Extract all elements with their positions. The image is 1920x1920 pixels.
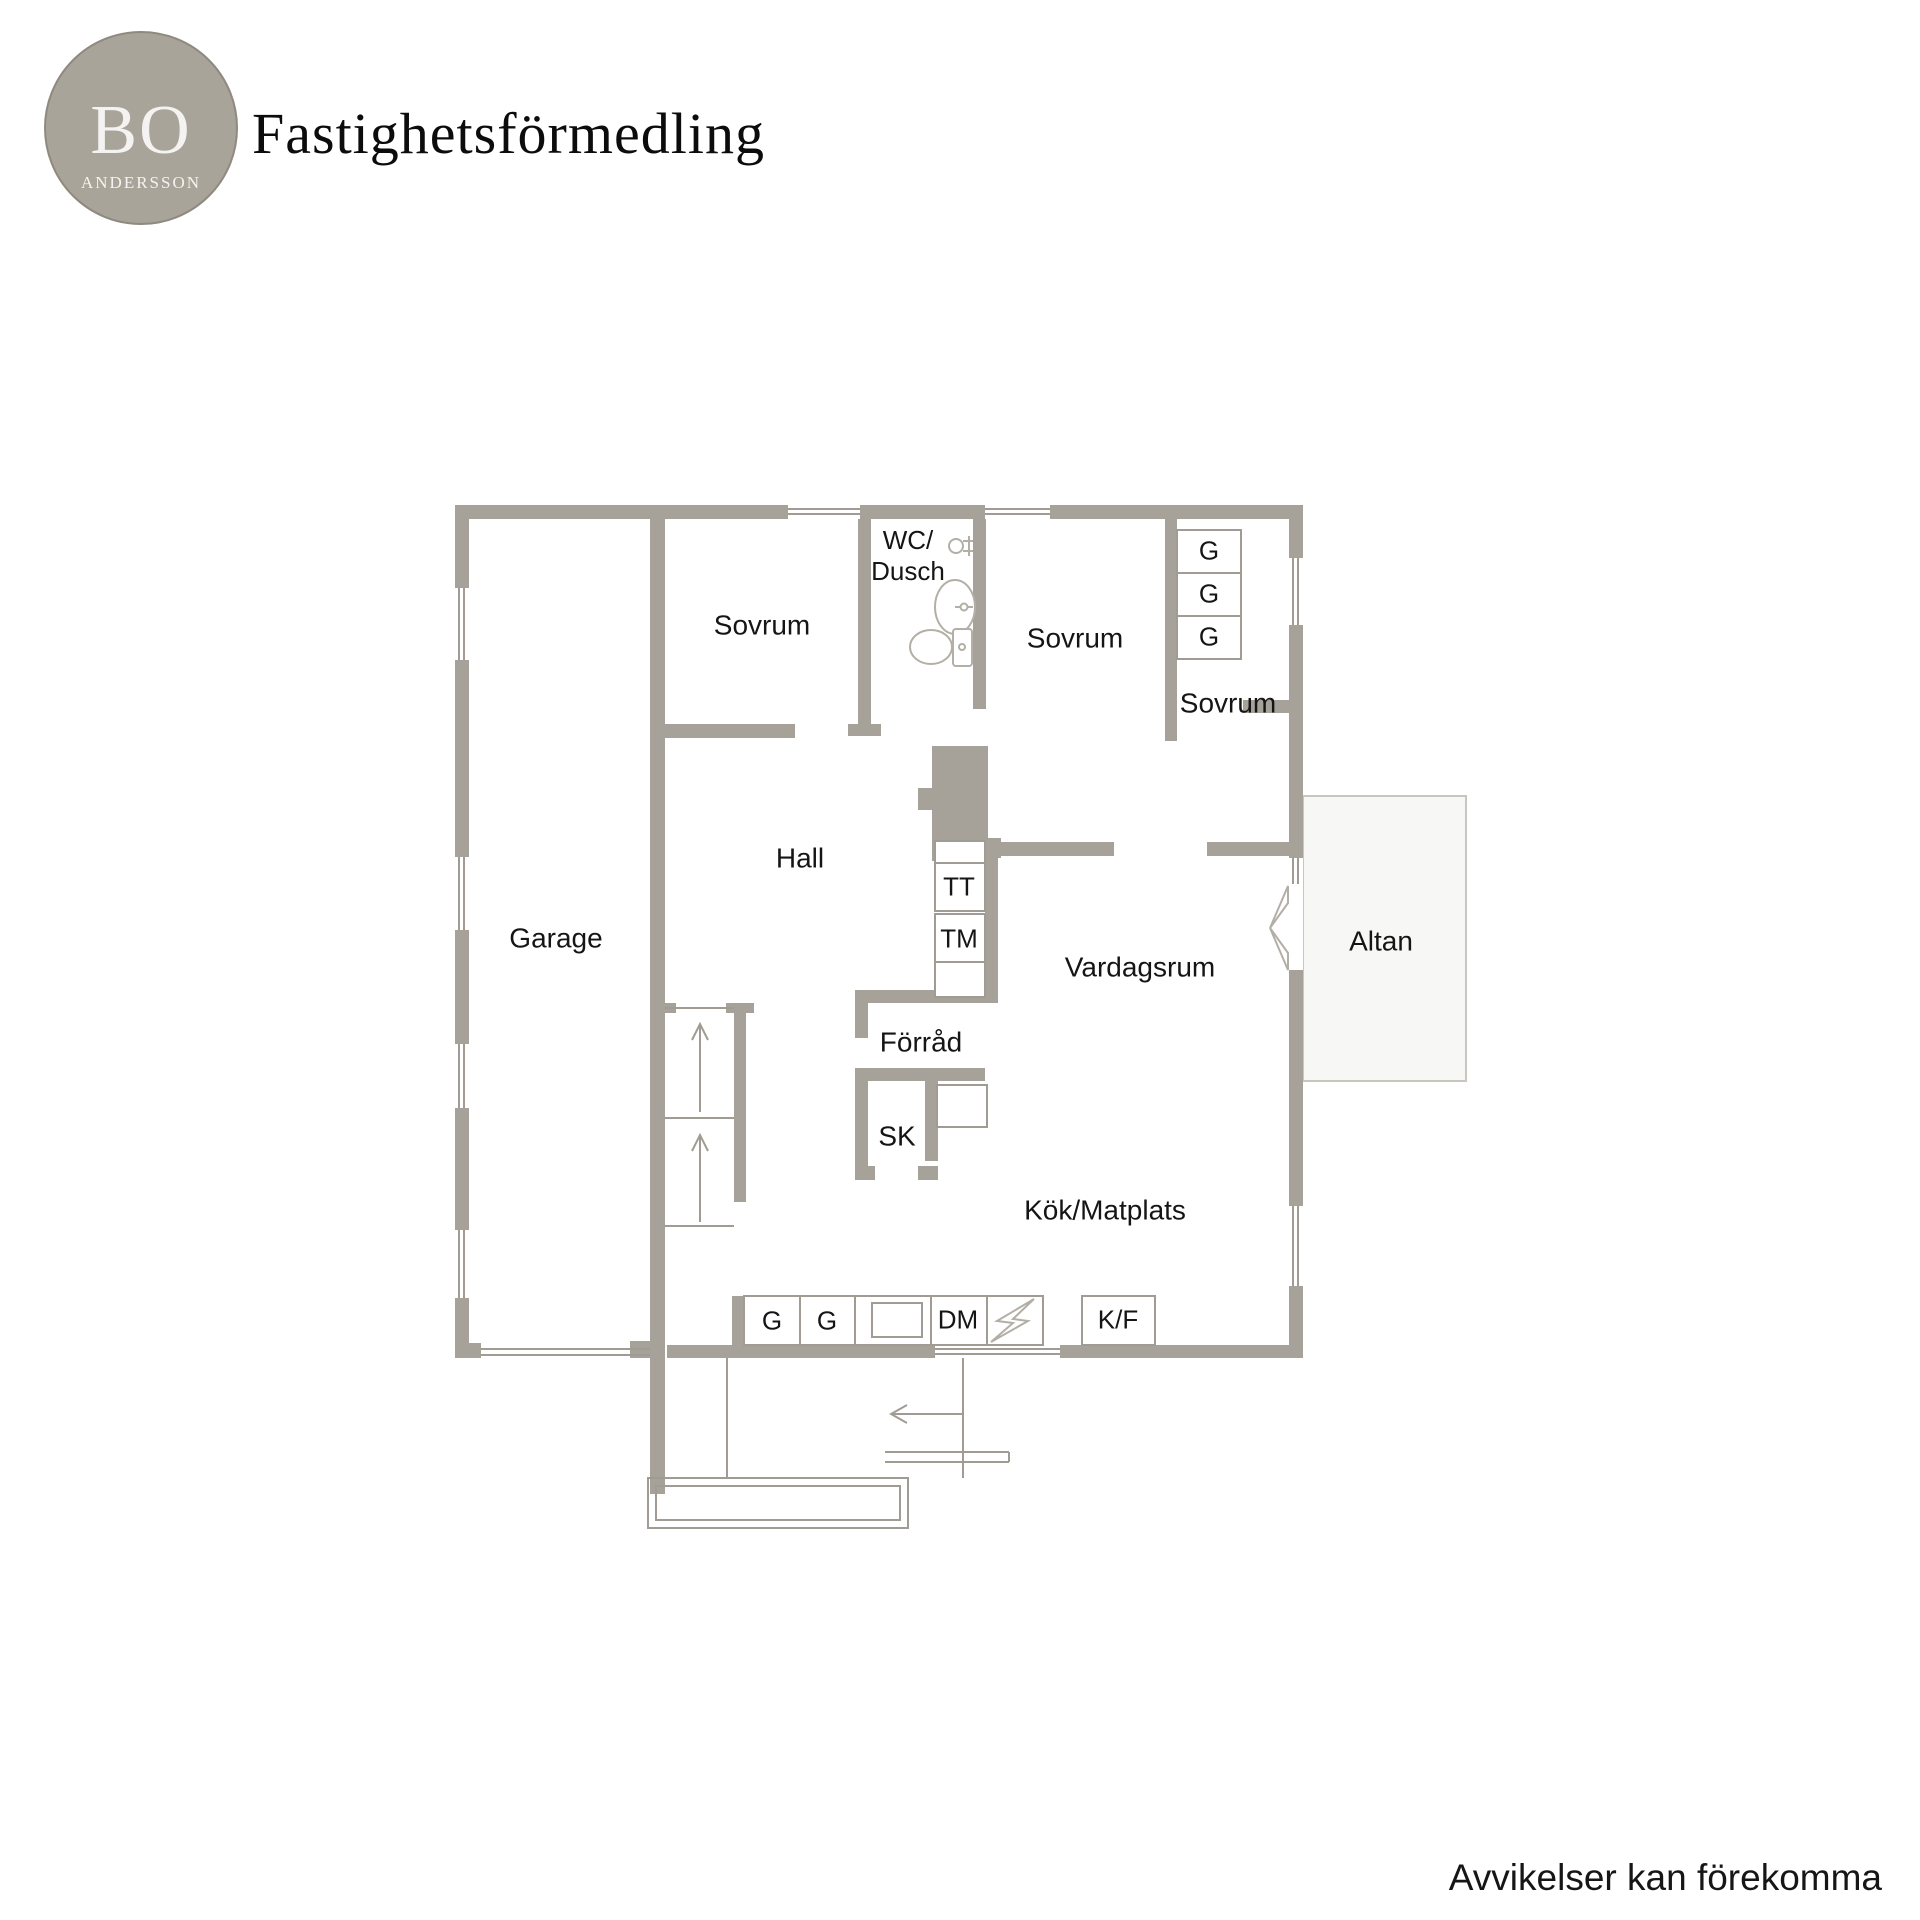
door-swing-icon — [1270, 886, 1288, 970]
stairs-up-arrow-icon — [692, 1024, 708, 1112]
room-label-sovrum-3: Sovrum — [1180, 688, 1276, 719]
closet-label-tm: TM — [940, 924, 978, 955]
floorplan-page: BO ANDERSSON Fastighetsförmedling — [0, 0, 1920, 1920]
floor-plan — [0, 0, 1920, 1920]
stairs-up-arrow-icon — [692, 1135, 708, 1222]
room-label-kok-matplats: Kök/Matplats — [1024, 1195, 1186, 1226]
laundry-closet — [935, 841, 985, 997]
room-label-sovrum-2: Sovrum — [1027, 623, 1123, 654]
room-label-wc-dusch: WC/ Dusch — [871, 525, 945, 587]
appliance-label-kf: K/F — [1098, 1305, 1138, 1336]
room-label-altan: Altan — [1349, 926, 1413, 957]
closet-label-tt: TT — [943, 872, 975, 903]
room-label-sovrum-1: Sovrum — [714, 610, 810, 641]
closet-label-g5: G — [817, 1306, 837, 1337]
appliance-label-dm: DM — [938, 1305, 978, 1336]
room-label-forrad: Förråd — [880, 1027, 962, 1058]
toilet-icon — [910, 629, 972, 666]
sink-icon — [935, 580, 975, 634]
sink-icon — [872, 1303, 922, 1337]
room-label-hall: Hall — [776, 843, 824, 874]
closet-label-g1: G — [1199, 536, 1219, 567]
shower-icon — [949, 536, 973, 556]
room-label-vardagsrum: Vardagsrum — [1065, 952, 1215, 983]
cabinet-box — [937, 1085, 987, 1127]
closet-label-g3: G — [1199, 622, 1219, 653]
disclaimer-text: Avvikelser kan förekomma — [1449, 1857, 1882, 1899]
garage-door-icon — [481, 1349, 650, 1355]
entrance-porch — [648, 1358, 1009, 1528]
entrance-arrow-icon — [891, 1405, 963, 1423]
room-label-garage: Garage — [509, 923, 602, 954]
closet-label-g2: G — [1199, 579, 1219, 610]
room-label-sk: SK — [878, 1121, 915, 1152]
staircase — [664, 1008, 734, 1226]
closet-label-g4: G — [762, 1306, 782, 1337]
